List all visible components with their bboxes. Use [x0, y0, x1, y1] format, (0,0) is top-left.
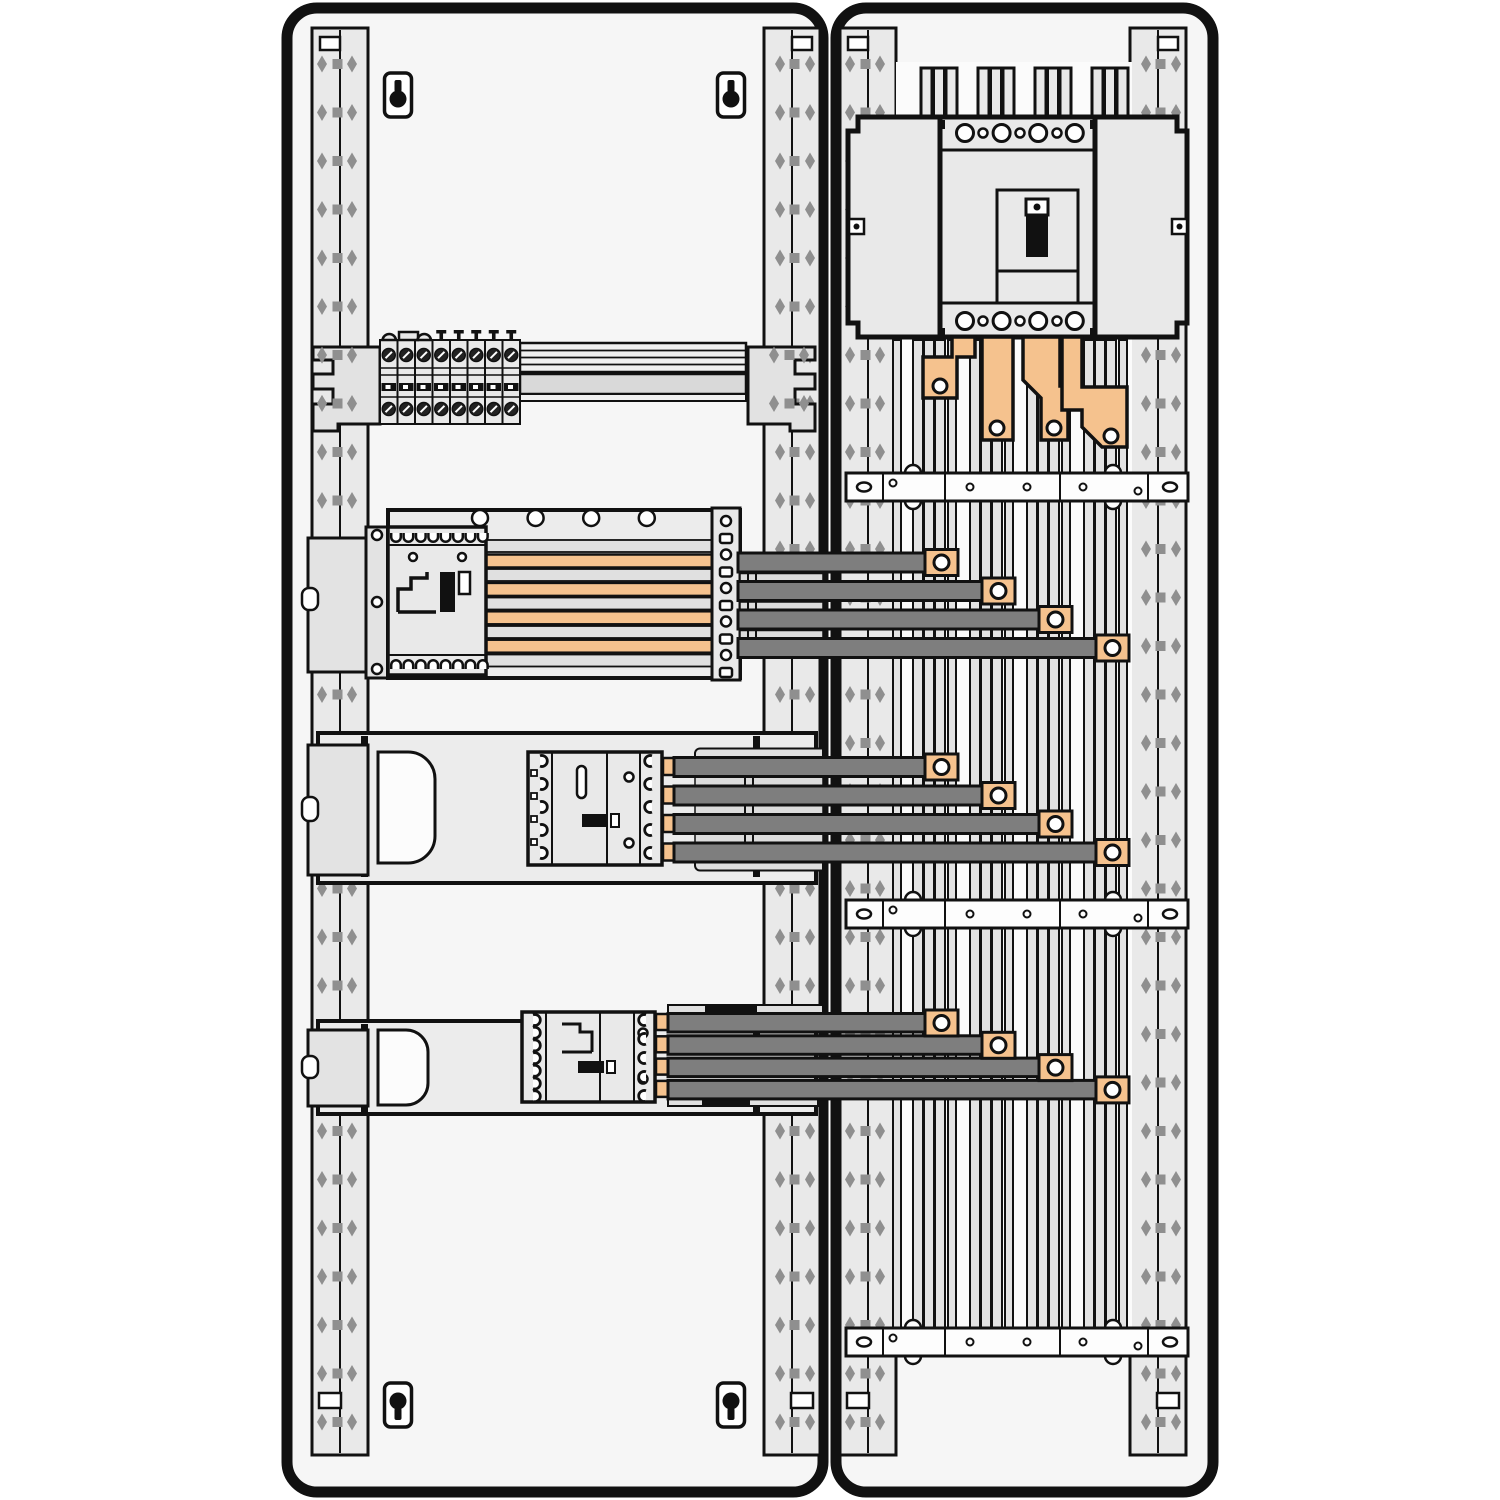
plate-cutout: [378, 752, 435, 863]
keyhole-bottom-left: [385, 1383, 412, 1427]
terminal-hook: [639, 1015, 646, 1026]
terminal-hook: [416, 533, 426, 542]
terminal-module: [398, 340, 416, 424]
feeder-bar: [738, 610, 1043, 629]
right-enclosure: [836, 8, 1213, 1492]
toggle: [1026, 215, 1048, 257]
backplate-hole: [583, 510, 599, 526]
busbar-clamp: [1096, 840, 1129, 866]
terminal-hook: [639, 1053, 646, 1064]
busbar-run-bottom: [520, 394, 746, 401]
busbar-top-stub: [978, 68, 1014, 117]
terminal-hook: [639, 1034, 646, 1045]
phase-bar: [486, 640, 740, 653]
busbar-clamp: [1039, 607, 1072, 633]
terminal-hook: [453, 533, 463, 542]
bracket-notch: [302, 797, 318, 821]
busbar-clamp: [1039, 1055, 1072, 1081]
terminal-hook: [540, 756, 547, 767]
terminal-hook: [391, 533, 401, 542]
terminal-hook: [416, 660, 426, 669]
feeder-bar: [674, 815, 1041, 834]
busbar-clamp: [1039, 811, 1072, 837]
terminal-hook: [533, 1065, 540, 1076]
module-arch: [418, 334, 432, 340]
phase-bar: [486, 583, 740, 596]
left-enclosure: [287, 8, 823, 1492]
terminal-hook: [639, 1091, 646, 1102]
support-bracket-bottom: [846, 1320, 1188, 1364]
keyhole-top-left: [385, 73, 412, 117]
toggle: [440, 572, 455, 612]
terminal-hook: [645, 802, 652, 813]
toggle: [578, 1061, 604, 1073]
terminal-hook: [645, 779, 652, 790]
support-bracket-middle: [846, 892, 1188, 936]
terminal-hook: [391, 660, 401, 669]
toggle: [582, 814, 608, 827]
terminal-hook: [639, 1072, 646, 1083]
busbar-clamp: [925, 754, 958, 780]
busbar-top-stub: [1092, 68, 1128, 117]
busbar-clamp: [982, 783, 1015, 809]
busbar-clamp: [1096, 1077, 1129, 1103]
mccb-row-mid: [302, 508, 766, 680]
feeder-bar: [668, 1080, 1098, 1099]
keyhole-bottom-right: [718, 1383, 745, 1427]
terminal-hook: [533, 1091, 540, 1102]
terminal-hook: [540, 825, 547, 836]
bracket-notch: [302, 588, 318, 610]
mccb-device: [388, 527, 488, 675]
busbar-clamp: [982, 1032, 1015, 1058]
terminal-hook: [428, 533, 438, 542]
busbar-top-stub: [921, 68, 957, 117]
terminal-module: [450, 340, 468, 424]
terminal-hook: [533, 1053, 540, 1064]
terminal-hook: [645, 825, 652, 836]
terminal-hook: [404, 533, 414, 542]
terminal-hook: [540, 779, 547, 790]
bracket-notch: [302, 1056, 318, 1078]
phase-bar: [486, 555, 740, 568]
phase-bar: [486, 611, 740, 624]
terminal-hook: [540, 802, 547, 813]
keyhole-top-right: [718, 73, 745, 117]
terminal-hook: [441, 533, 451, 542]
terminal-module: [485, 340, 503, 424]
terminal-hook: [466, 533, 476, 542]
terminal-hook: [466, 660, 476, 669]
mccb-device: [522, 1012, 655, 1102]
mccb-device: [528, 752, 662, 865]
backplate-hole: [639, 510, 655, 526]
feeder-bar: [668, 1058, 1041, 1077]
plate-cutout: [378, 1030, 428, 1105]
terminal-module: [468, 340, 486, 424]
terminal-module: [415, 340, 433, 424]
terminal-hook: [533, 1040, 540, 1051]
feeder-bar: [738, 639, 1100, 658]
terminal-hook: [533, 1015, 540, 1026]
feeder-bar: [668, 1014, 927, 1033]
feeder-bar: [674, 758, 927, 777]
backplate-hole: [528, 510, 544, 526]
support-bracket-top: [846, 465, 1188, 509]
switchboard-svg: [0, 0, 1500, 1500]
backplate-hole: [472, 510, 488, 526]
feeder-bar: [668, 1036, 984, 1055]
terminal-hook: [540, 848, 547, 859]
module-cap: [399, 332, 418, 340]
feeder-bar: [738, 582, 985, 601]
module-arch: [383, 334, 397, 340]
feeder-bar: [738, 553, 928, 572]
din-rail-run: [520, 374, 746, 394]
busbar-clamp: [925, 550, 958, 576]
terminal-hook: [428, 660, 438, 669]
busbar-top-stub: [1035, 68, 1071, 117]
terminal-hook: [645, 848, 652, 859]
busbar-clamp: [982, 578, 1015, 604]
terminal-hook: [533, 1078, 540, 1089]
terminal-hook: [453, 660, 463, 669]
feeder-bar: [674, 786, 984, 805]
switchboard-illustration: [0, 0, 1500, 1500]
terminal-modules: [380, 330, 520, 424]
terminal-hook: [404, 660, 414, 669]
busbar-clamp: [925, 1010, 958, 1036]
terminal-module: [380, 340, 398, 424]
terminal-module: [433, 340, 451, 424]
terminal-hook: [478, 660, 488, 669]
bundle-cap-top: [695, 749, 823, 758]
main-breaker: [848, 117, 1187, 337]
feeder-bar: [674, 843, 1098, 862]
terminal-hook: [478, 533, 488, 542]
terminal-hook: [533, 1027, 540, 1038]
terminal-hook: [645, 756, 652, 767]
terminal-hook: [441, 660, 451, 669]
busbar-clamp: [1096, 635, 1129, 661]
terminal-module: [503, 340, 521, 424]
comb-connector: [712, 508, 740, 680]
